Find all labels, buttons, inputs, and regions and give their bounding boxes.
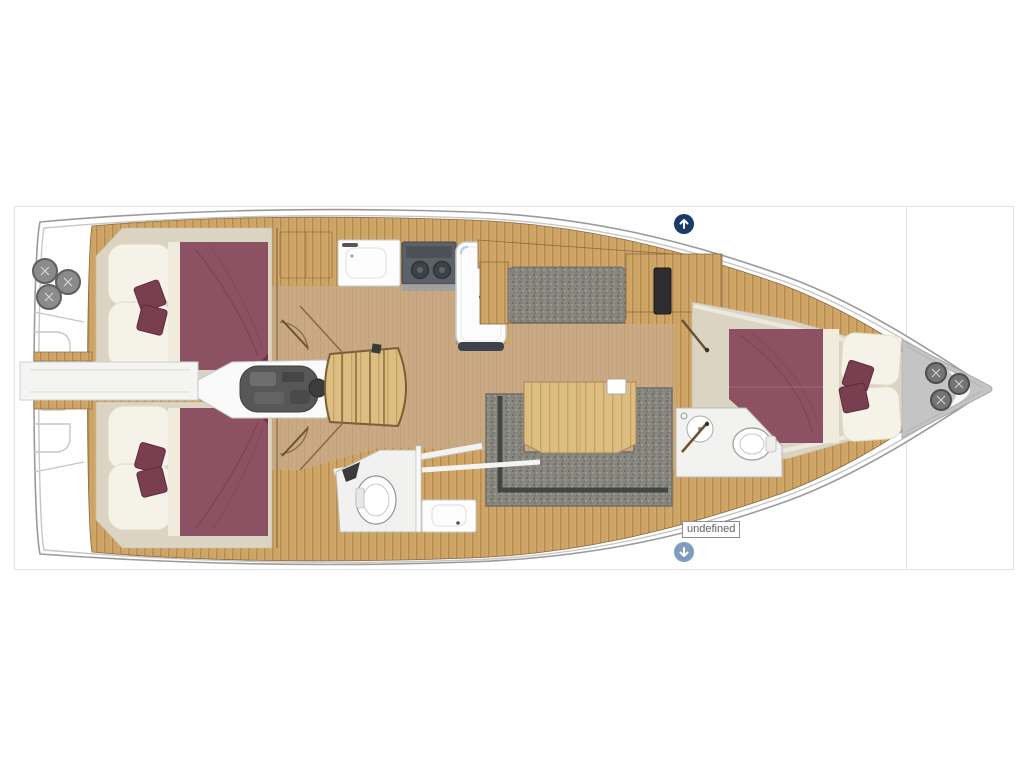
arrow-down-icon <box>678 546 690 558</box>
arrow-up-icon <box>678 218 690 230</box>
aft-cabin-port <box>96 228 277 384</box>
salon-sofa <box>486 379 672 506</box>
tooltip: undefined <box>682 521 740 538</box>
salon-table <box>524 379 636 453</box>
scroll-down-button[interactable] <box>674 542 694 562</box>
scroll-up-button[interactable] <box>674 214 694 234</box>
galley-sink <box>338 240 400 286</box>
tv-locker <box>654 268 671 314</box>
page: undefined <box>0 0 1024 767</box>
aft-cabin-starboard <box>96 402 277 548</box>
bow-foredeck <box>902 340 992 438</box>
boat-floorplan <box>0 0 1024 767</box>
galley-stove <box>402 242 456 291</box>
aft-head-sink <box>422 500 476 532</box>
engine <box>240 366 327 412</box>
mast-step <box>371 343 381 353</box>
companionway-stairs <box>325 348 406 427</box>
